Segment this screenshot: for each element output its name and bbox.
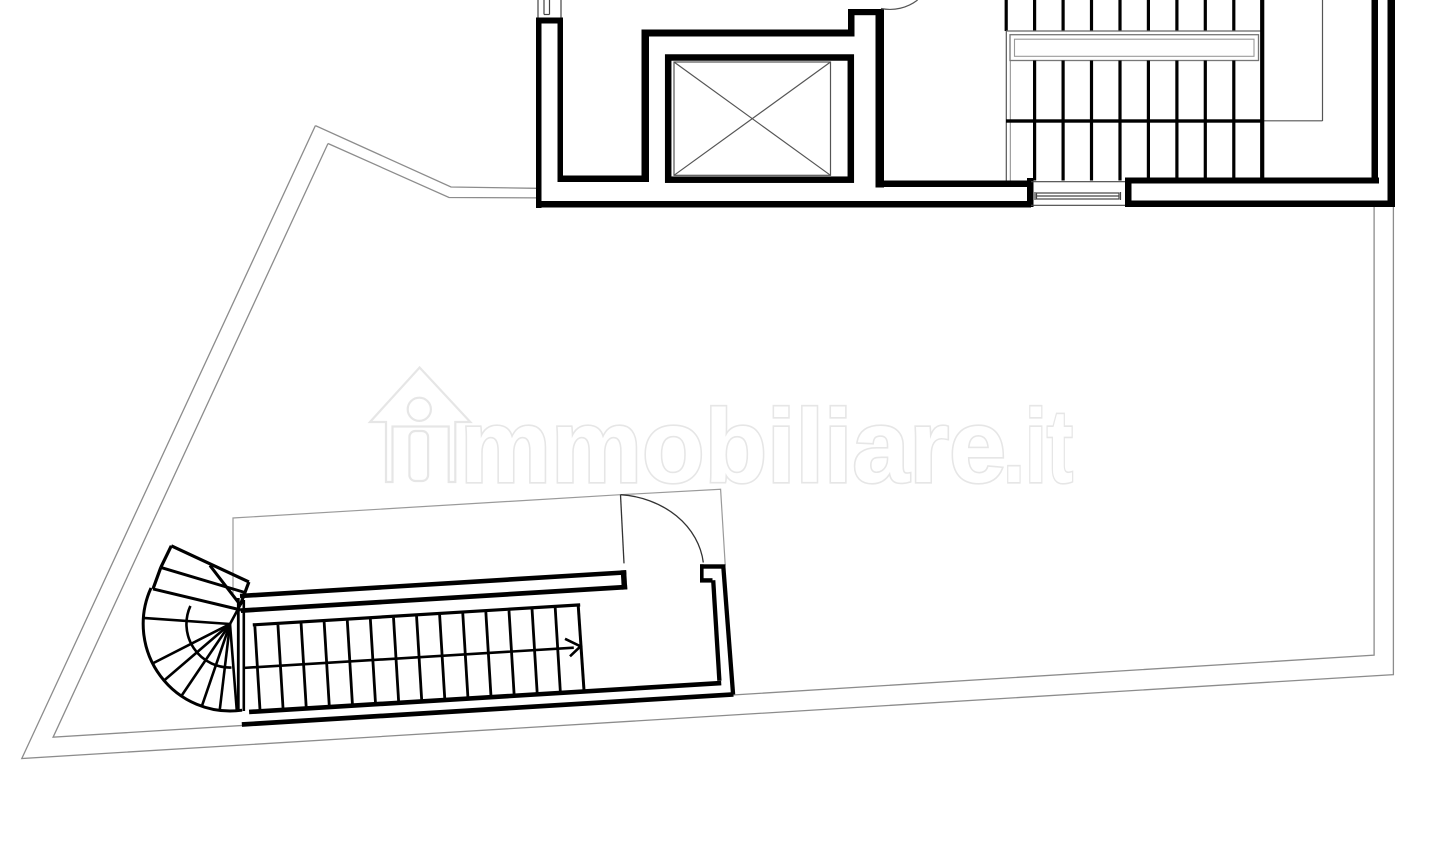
svg-text:mmobiliare: mmobiliare bbox=[460, 389, 1006, 505]
svg-text:.it: .it bbox=[1003, 389, 1073, 505]
